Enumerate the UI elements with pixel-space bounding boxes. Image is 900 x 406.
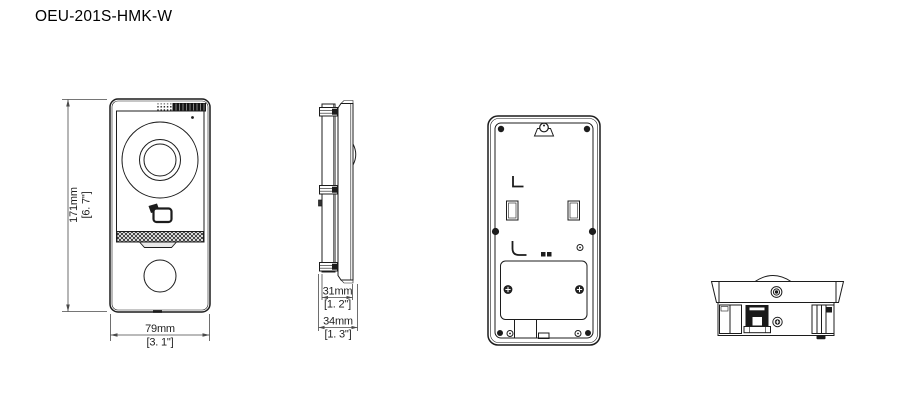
alignment-mark-lower — [513, 241, 527, 255]
technical-drawing-canvas: 171mm [6. 7"] 79mm [3. 1"] — [0, 0, 900, 406]
bottom-notch — [153, 310, 162, 313]
front-width-dimension: 79mm [3. 1"] — [111, 314, 210, 349]
speaker-mesh — [117, 232, 204, 248]
height-mm-label: 171mm — [68, 187, 80, 223]
side-view — [319, 101, 356, 284]
width-mm-label: 79mm — [145, 323, 175, 335]
cable-cover — [501, 261, 588, 320]
total-depth-inch-label: [1. 3"] — [325, 329, 352, 341]
indicator-hole — [577, 245, 583, 251]
cover-screw-left — [504, 286, 512, 294]
back-inner-panel — [495, 123, 593, 338]
side-screw-right — [589, 228, 596, 235]
inner-depth-inch-label: [1. 2"] — [324, 299, 351, 311]
alignment-mark-upper — [513, 176, 524, 187]
clip-block-left — [720, 305, 742, 334]
call-button — [144, 260, 176, 292]
bracket-nub — [319, 200, 323, 206]
bracket-clip-top — [320, 108, 338, 117]
wire-connector — [541, 252, 552, 257]
front-view — [110, 99, 210, 313]
width-inch-label: [3. 1"] — [147, 337, 174, 349]
mounting-slot-left — [507, 201, 519, 220]
front-height-dimension: 171mm [6. 7"] — [62, 100, 107, 312]
cover-screw-right — [576, 286, 584, 294]
device-body-profile — [338, 101, 356, 284]
height-inch-label: [6. 7"] — [81, 191, 93, 218]
side-screw-left — [492, 228, 499, 235]
microphone-grille — [157, 103, 206, 112]
drawing-sheet: OEU-201S-HMK-W — [0, 0, 900, 406]
ethernet-port — [744, 305, 771, 333]
fixing-screw — [773, 317, 782, 326]
mesh-tab — [140, 242, 177, 248]
front-outer-shell — [110, 99, 210, 312]
port-bracket — [744, 327, 771, 333]
clip-block-right — [812, 305, 834, 334]
camera-dome — [755, 276, 791, 282]
side-inner-depth-dimension: 31mm [1. 2"] — [322, 274, 353, 311]
rfid-card-icon — [149, 204, 172, 223]
inner-depth-mm-label: 31mm — [323, 286, 353, 298]
camera-lens-icon — [122, 122, 198, 198]
hanging-hole — [535, 123, 554, 136]
mounting-slot-right — [568, 201, 580, 220]
corner-screw-top-left — [498, 126, 504, 132]
status-led-dot — [191, 116, 194, 119]
bracket-clip-middle — [320, 186, 338, 195]
mic-port — [771, 287, 782, 298]
corner-screw-top-right — [584, 126, 590, 132]
back-outer-shell — [488, 116, 600, 345]
cable-channel — [515, 320, 550, 339]
bracket-clip-bottom — [320, 263, 338, 272]
bottom-view — [712, 276, 844, 340]
back-view — [488, 116, 600, 345]
locking-tab — [817, 336, 826, 340]
total-depth-mm-label: 34mm — [323, 316, 353, 328]
